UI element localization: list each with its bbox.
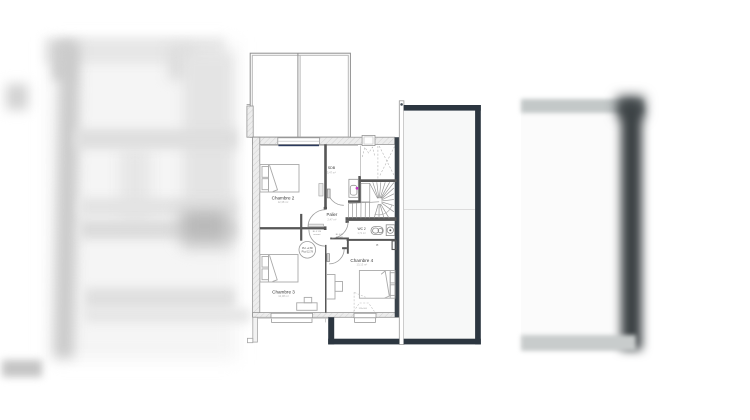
svg-text:12,38 m²: 12,38 m² <box>278 294 289 298</box>
svg-text:Chambre 2: Chambre 2 <box>272 195 295 200</box>
svg-text:WC 2: WC 2 <box>357 227 365 231</box>
svg-text:ouvrant: ouvrant <box>336 235 343 238</box>
svg-text:1,71 m²: 1,71 m² <box>357 232 366 235</box>
svg-text:SDB: SDB <box>328 166 336 170</box>
svg-text:P.: P. <box>376 243 378 247</box>
svg-text:Chambre 3: Chambre 3 <box>272 289 295 294</box>
svg-text:Chambre 4: Chambre 4 <box>350 258 373 263</box>
svg-text:ouvrant: ouvrant <box>313 233 320 236</box>
svg-text:2,47 m²: 2,47 m² <box>327 217 336 221</box>
svg-text:Plcd 12,78: Plcd 12,78 <box>302 250 314 253</box>
svg-text:13,13 m²: 13,13 m² <box>356 263 367 267</box>
svg-text:Palier: Palier <box>327 212 338 217</box>
svg-text:12,38 m²: 12,38 m² <box>278 200 289 204</box>
svg-text:125x100: 125x100 <box>359 308 368 310</box>
svg-text:3,47 m²: 3,47 m² <box>327 170 336 174</box>
